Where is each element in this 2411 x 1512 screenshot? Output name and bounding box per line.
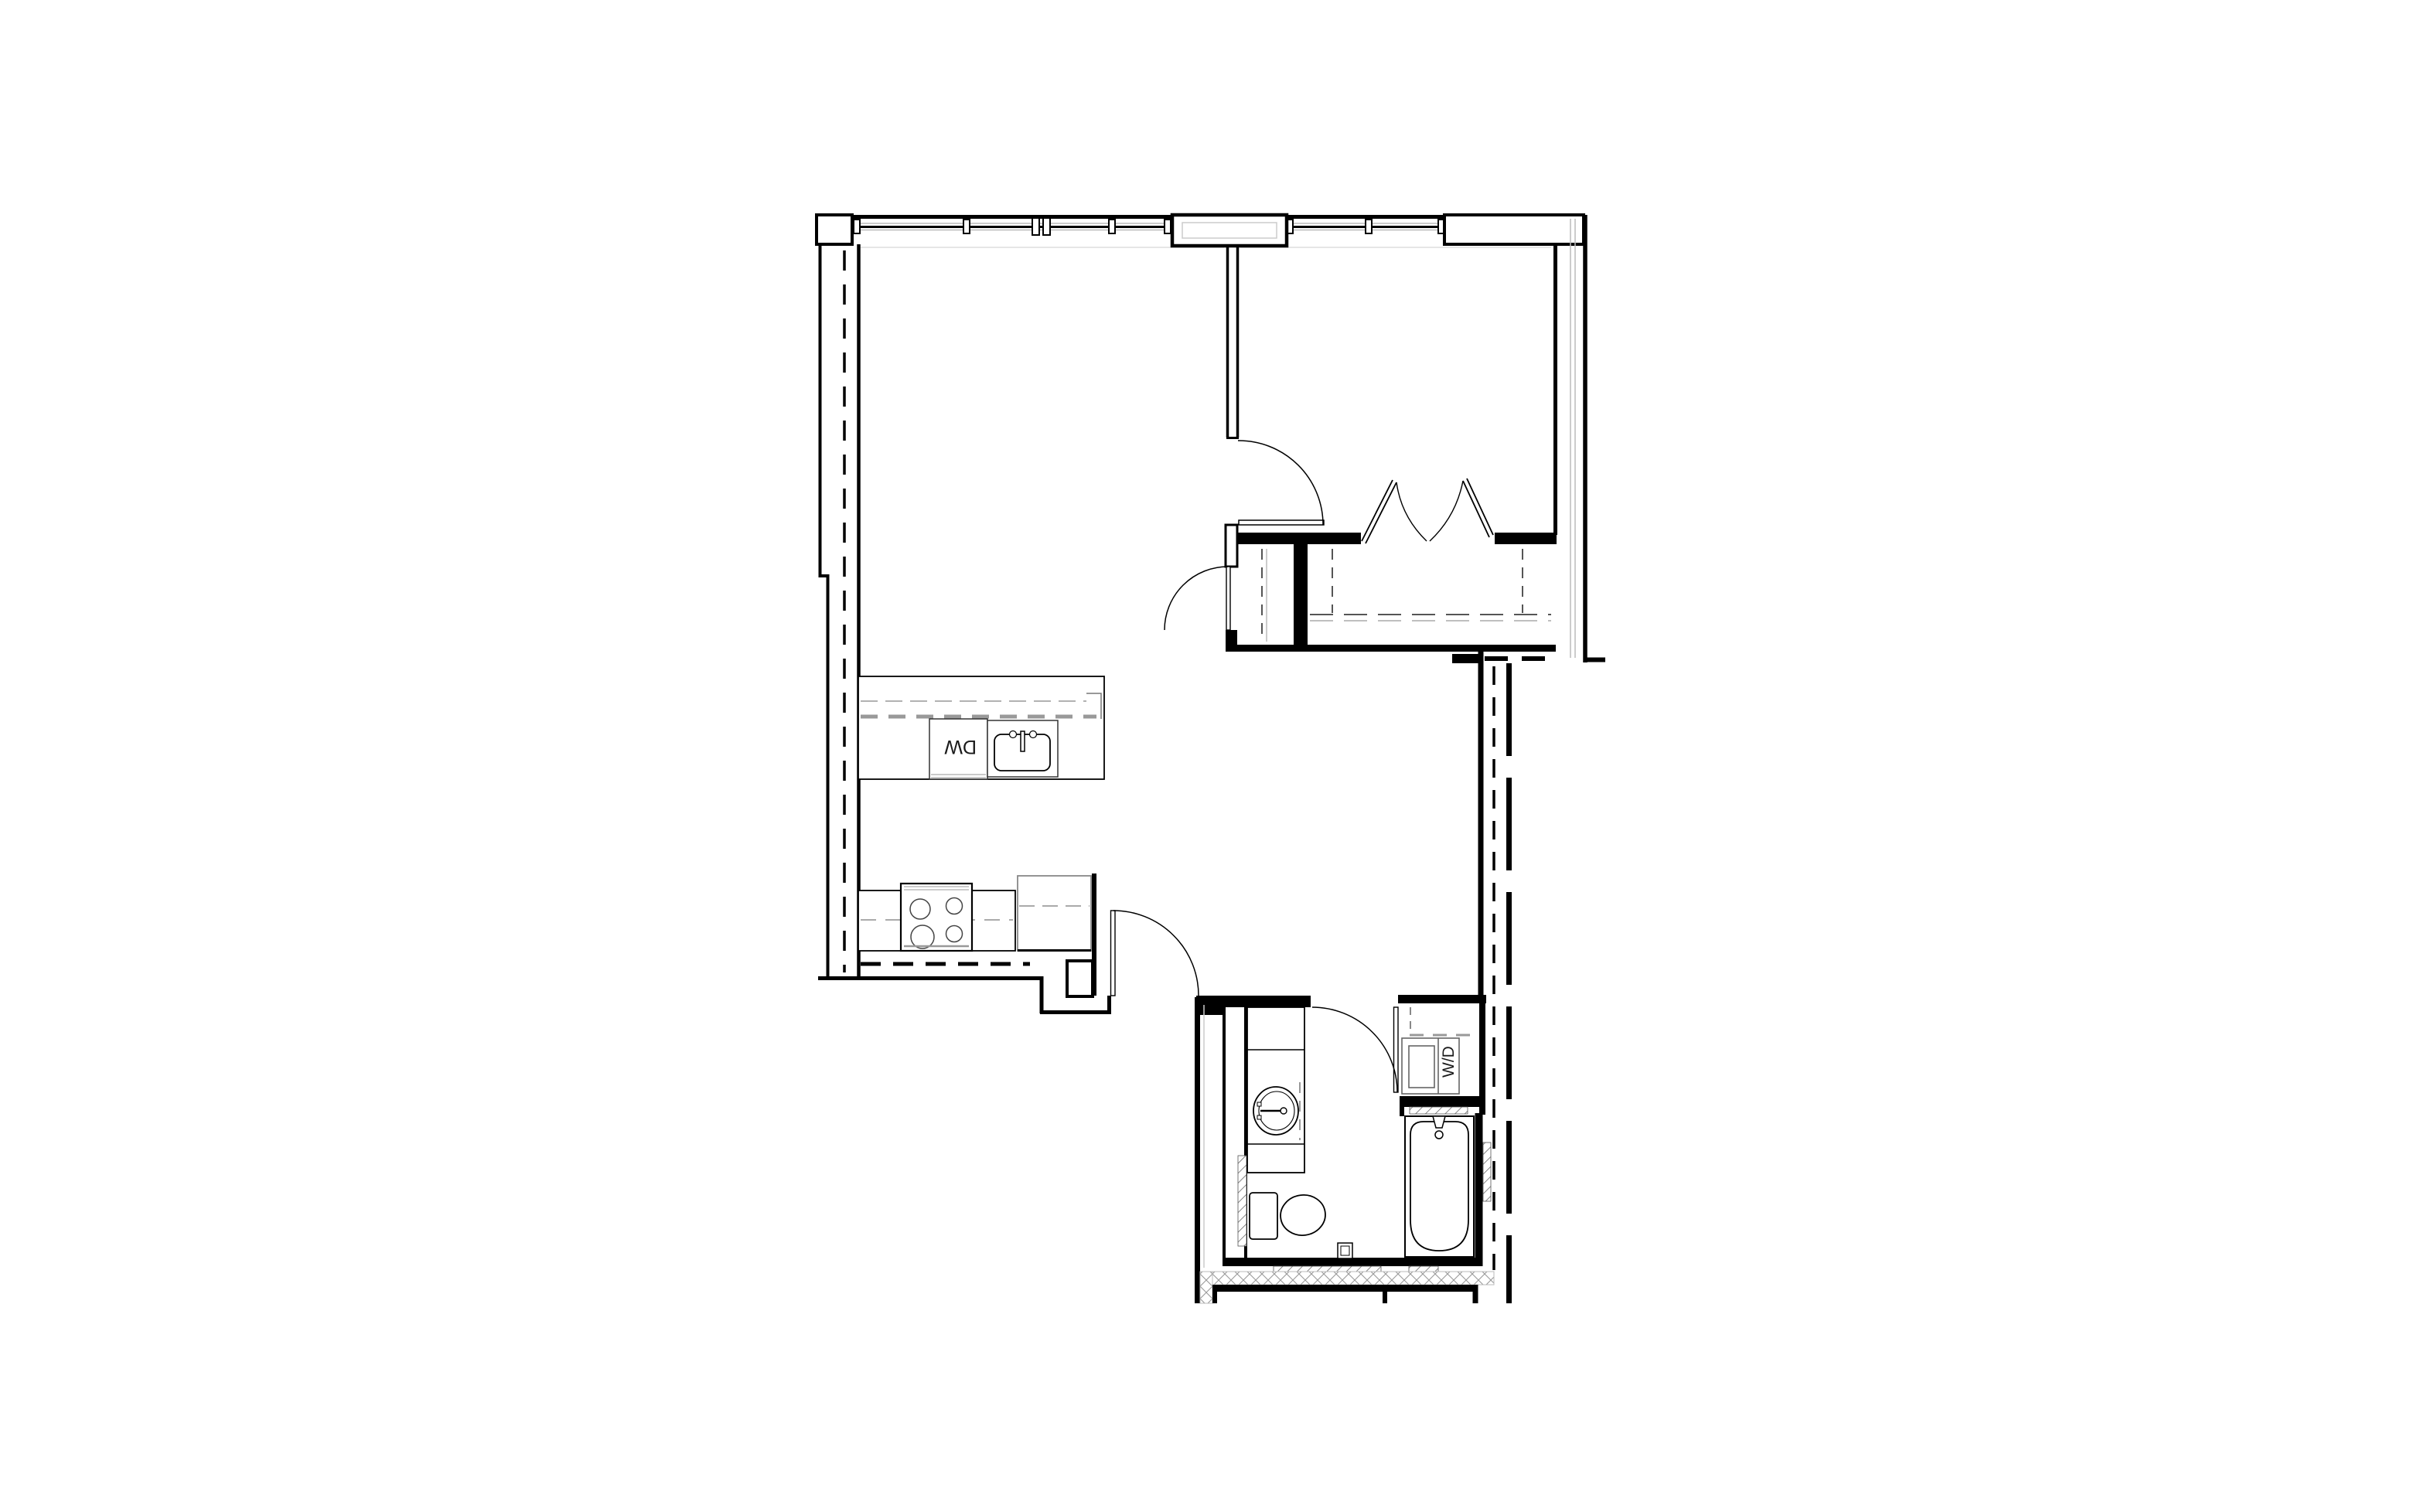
kitchen-sink (987, 720, 1058, 777)
entry-door (1111, 911, 1199, 996)
floor-plan-page: DW (0, 0, 2411, 1512)
bathtub (1405, 1116, 1474, 1257)
washer-dryer-closet: W/D (1398, 995, 1486, 1116)
washer-dryer-label: W/D (1440, 1046, 1458, 1078)
range-stove (901, 884, 972, 951)
adjacent-unit-walls (1212, 1285, 1478, 1303)
hall-closet-door (1165, 567, 1230, 630)
floor-plan-drawing: DW (0, 0, 2411, 1512)
bedroom-divider-wall (1226, 244, 1239, 438)
refrigerator (1018, 876, 1091, 951)
bathroom-door (1312, 1007, 1398, 1092)
dishwasher: DW (929, 719, 987, 779)
closet-walls (1226, 525, 1557, 652)
bedroom-door (1238, 441, 1324, 525)
window-band-living (857, 223, 1169, 230)
floor-stop-fixture (1338, 1243, 1352, 1258)
right-exterior-wall (1556, 215, 1606, 662)
dishwasher-label: DW (944, 736, 977, 758)
toilet (1250, 1192, 1328, 1239)
vanity-sink (1247, 1007, 1304, 1173)
bifold-closet-doors (1362, 478, 1493, 543)
left-demising-wall (820, 244, 859, 979)
